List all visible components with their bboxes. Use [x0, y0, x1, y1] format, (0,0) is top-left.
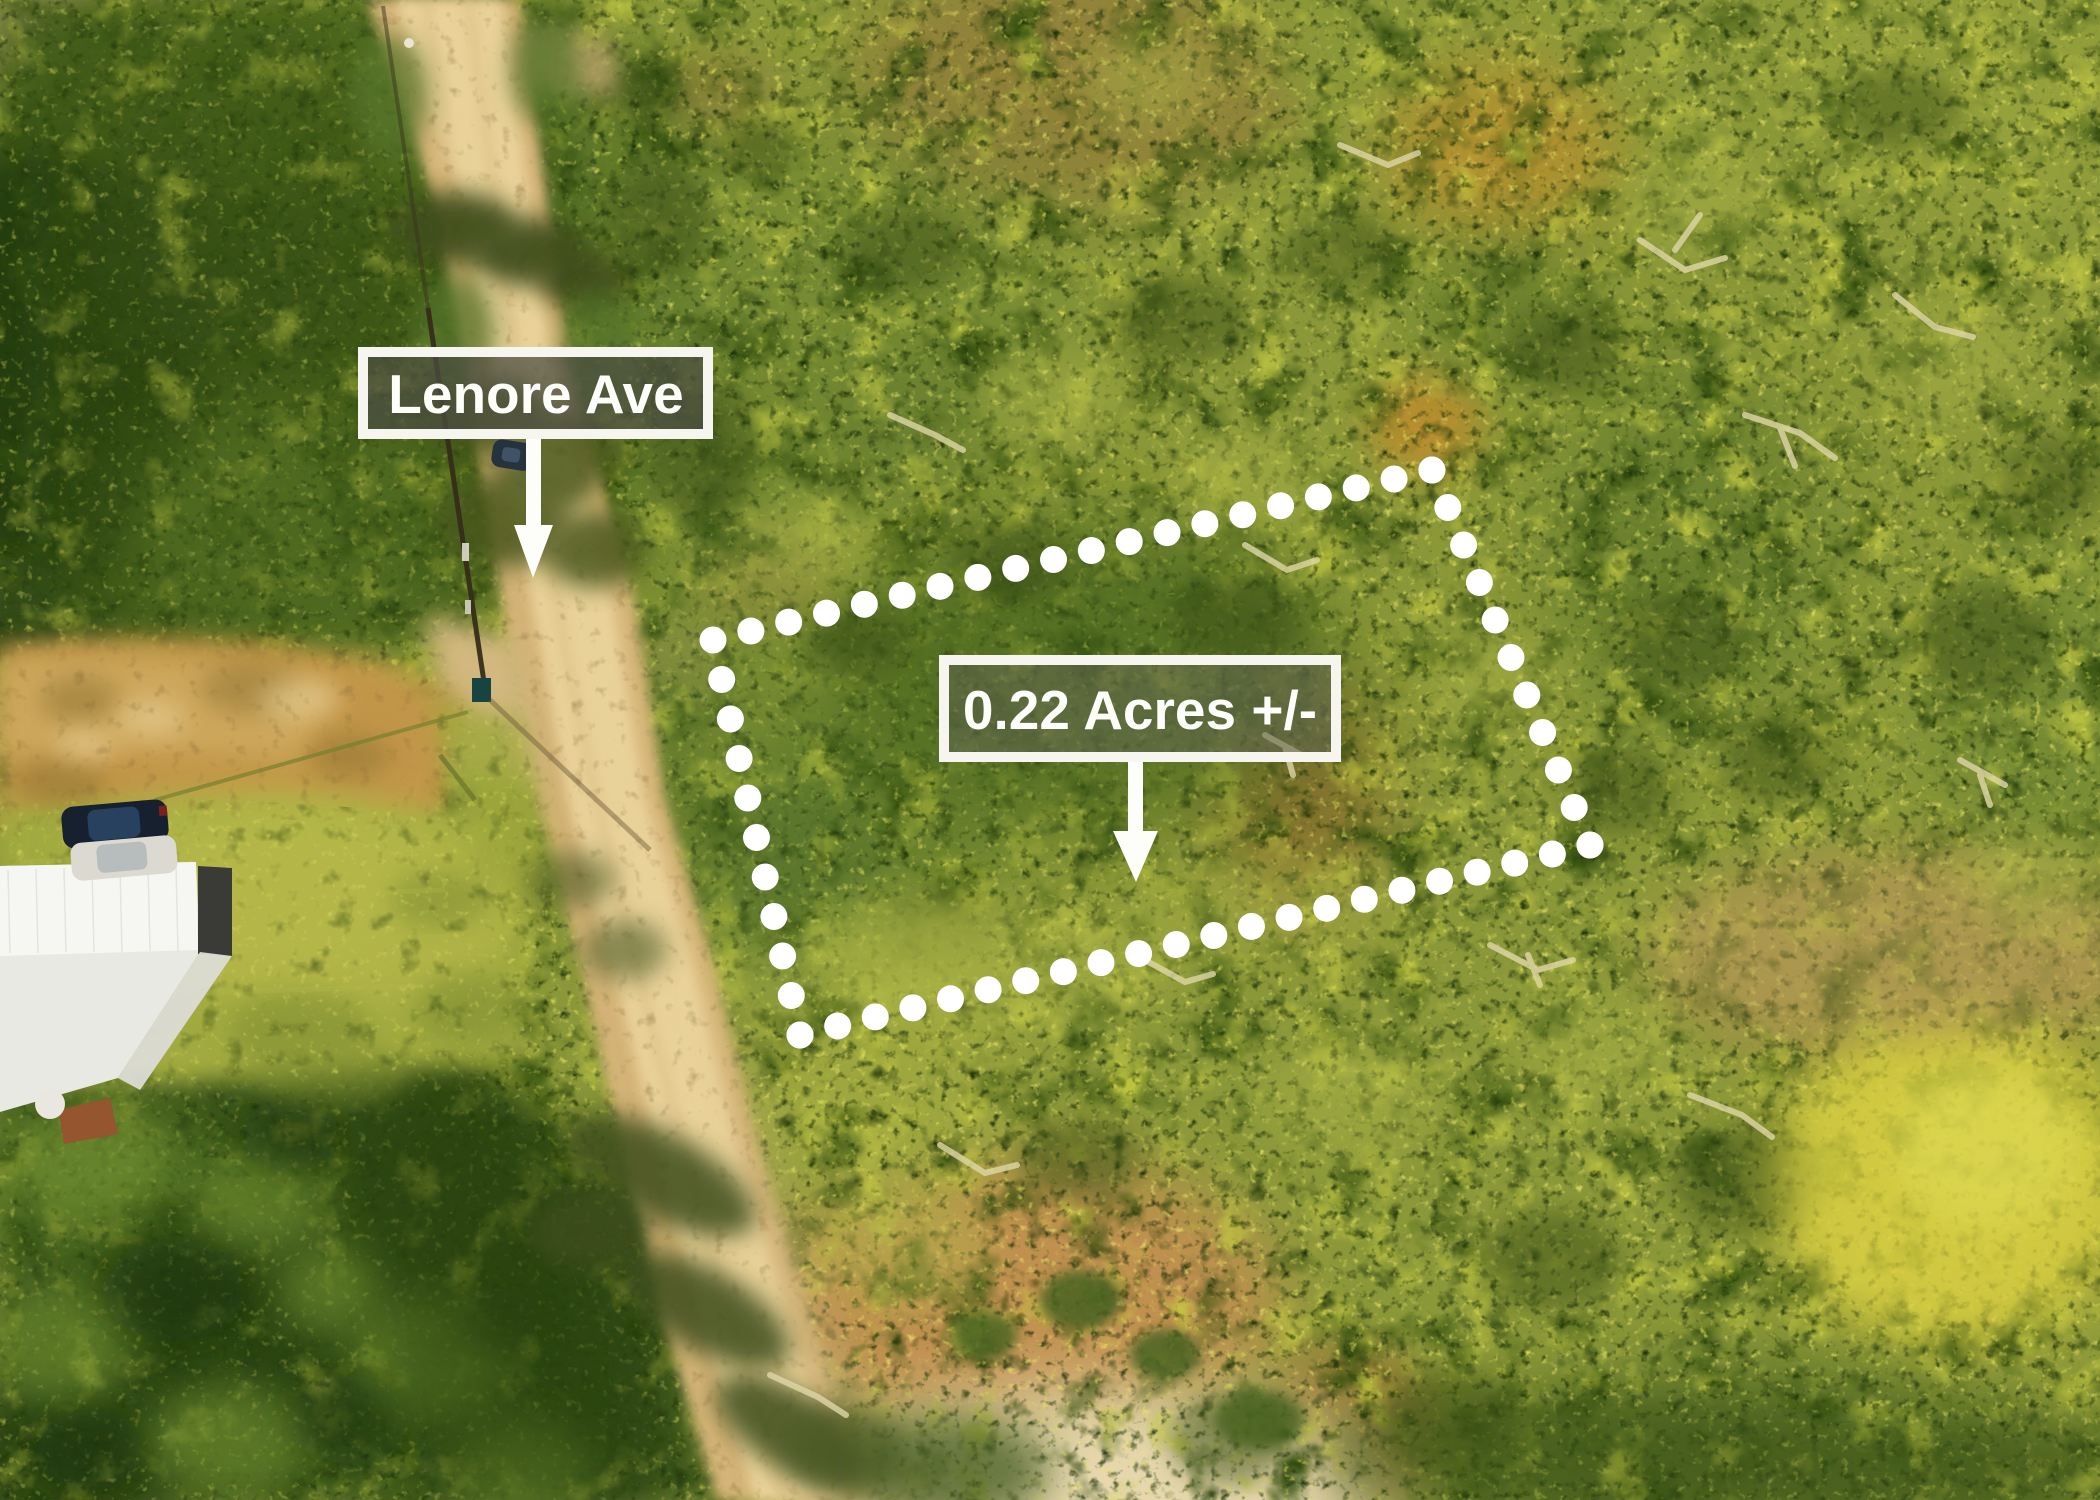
svg-text:0.22 Acres +/-: 0.22 Acres +/- — [963, 679, 1317, 741]
svg-text:Lenore Ave: Lenore Ave — [388, 363, 683, 425]
